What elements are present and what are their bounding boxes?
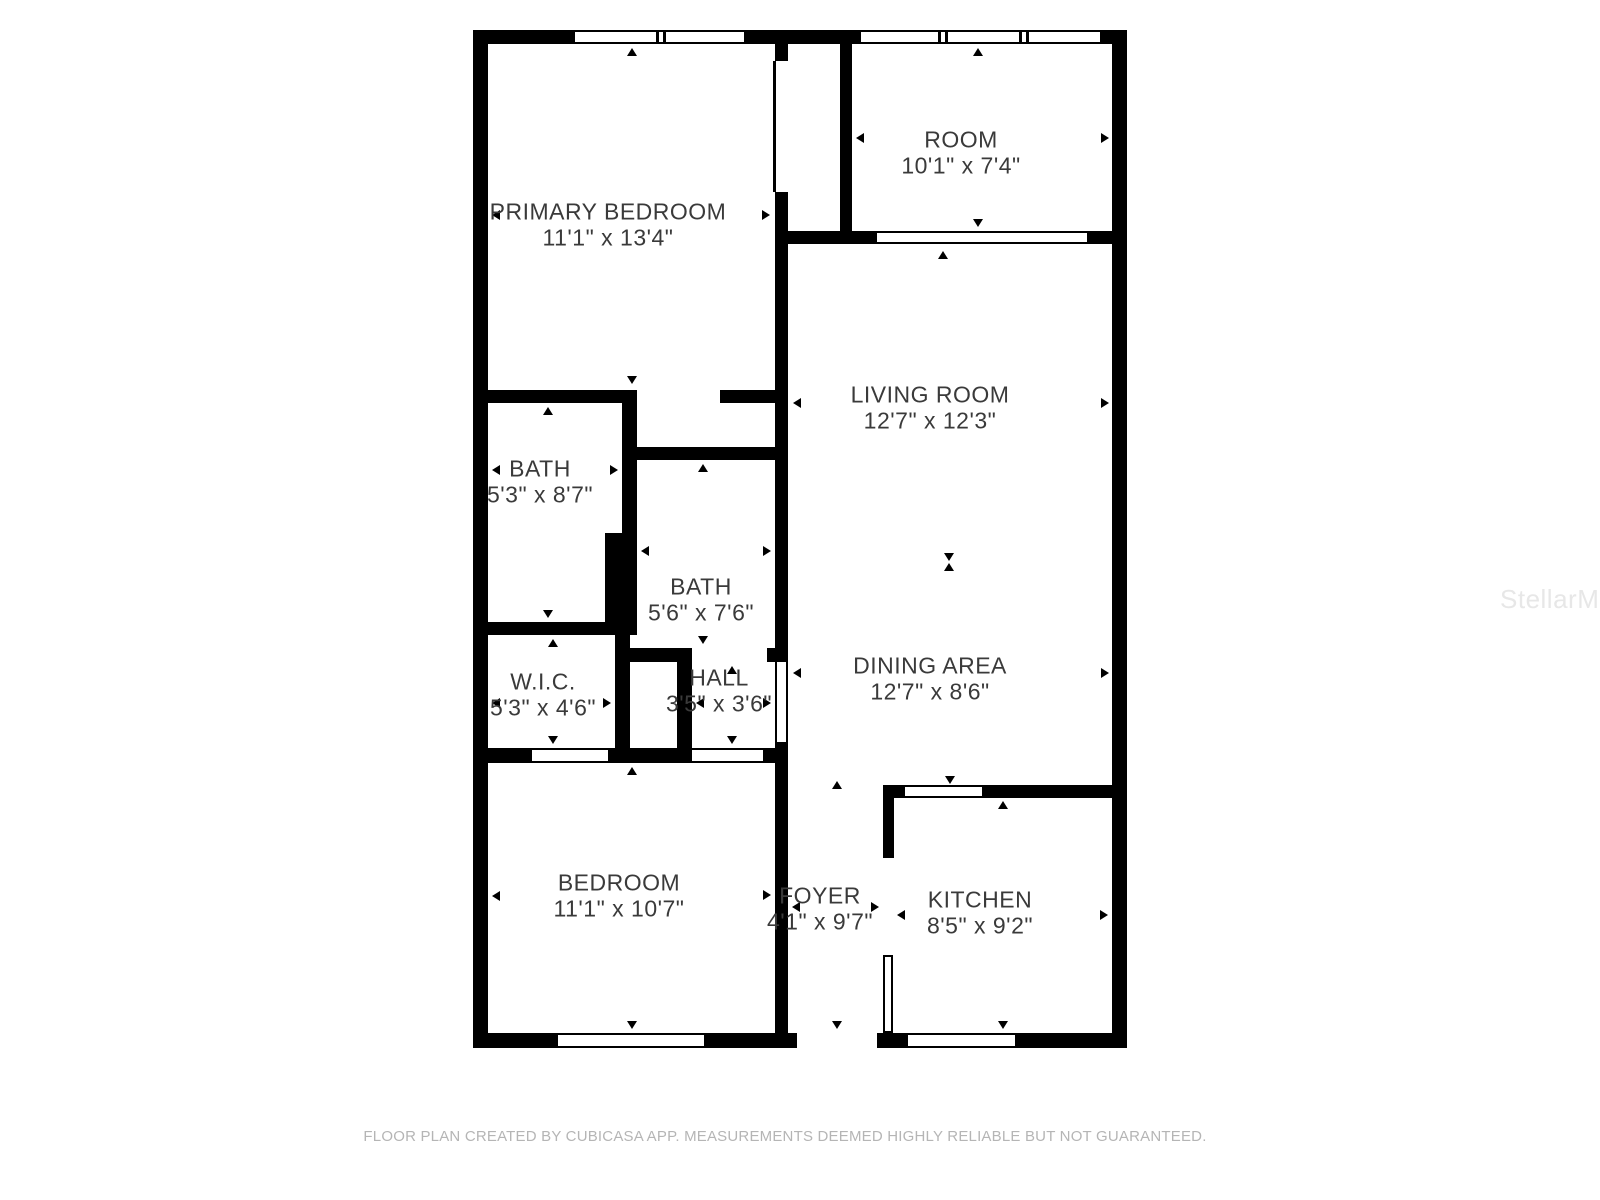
wall-opening <box>692 748 763 763</box>
window-mullion <box>938 32 941 42</box>
dimension-arrow-icon <box>627 48 637 56</box>
room-label-bath-2: BATH <box>670 574 732 601</box>
dimension-arrow-icon <box>793 398 801 408</box>
dimension-arrow-icon <box>548 639 558 647</box>
window <box>858 30 1103 44</box>
room-dims-bedroom: 11'1" x 10'7" <box>554 896 685 923</box>
wall <box>605 533 637 635</box>
window <box>902 785 985 798</box>
dimension-arrow-icon <box>610 465 618 475</box>
room-dims-primary-bedroom: 11'1" x 13'4" <box>543 225 674 252</box>
window-mullion <box>982 787 985 796</box>
room-dims-dining-area: 12'7" x 8'6" <box>870 679 989 706</box>
wall <box>767 648 788 662</box>
window-mullion <box>572 32 575 42</box>
window-mullion <box>1026 32 1029 42</box>
window-mullion <box>1019 32 1022 42</box>
dimension-arrow-icon <box>627 1021 637 1029</box>
room-label-kitchen: KITCHEN <box>928 887 1032 914</box>
dimension-arrow-icon <box>492 891 500 901</box>
dimension-arrow-icon <box>998 801 1008 809</box>
dimension-arrow-icon <box>998 1021 1008 1029</box>
dimension-arrow-icon <box>1101 398 1109 408</box>
wall <box>473 622 637 635</box>
wall <box>615 635 630 763</box>
room-dims-foyer: 4'1" x 9'7" <box>767 909 873 936</box>
dimension-arrow-icon <box>762 210 770 220</box>
room-dims-room: 10'1" x 7'4" <box>901 153 1020 180</box>
wall <box>630 648 692 662</box>
dimension-arrow-icon <box>973 48 983 56</box>
dimension-arrow-icon <box>832 781 842 789</box>
wall <box>622 390 637 533</box>
wall-opening <box>877 231 1087 244</box>
wall <box>1112 30 1127 1048</box>
room-label-hall: HALL <box>689 665 749 692</box>
door-gap <box>797 1033 877 1048</box>
watermark: StellarMLS <box>1500 584 1600 615</box>
dimension-arrow-icon <box>944 553 954 561</box>
wall-opening <box>532 748 608 763</box>
room-dims-living-room: 12'7" x 12'3" <box>864 408 997 435</box>
dimension-arrow-icon <box>698 636 708 644</box>
dimension-arrow-icon <box>1101 133 1109 143</box>
dimension-arrow-icon <box>1100 910 1108 920</box>
room-label-foyer: FOYER <box>779 883 861 910</box>
window-mullion <box>945 32 948 42</box>
wall <box>720 390 788 403</box>
dimension-arrow-icon <box>603 698 611 708</box>
wall <box>608 748 692 763</box>
room-dims-hall: 3'5" x 3'6" <box>666 691 772 718</box>
dimension-arrow-icon <box>492 465 500 475</box>
dimension-arrow-icon <box>641 546 649 556</box>
window-mullion <box>555 1035 558 1046</box>
wall <box>473 748 532 763</box>
footer-disclaimer: FLOOR PLAN CREATED BY CUBICASA APP. MEAS… <box>363 1128 1206 1145</box>
wall <box>775 44 788 61</box>
dimension-arrow-icon <box>856 133 864 143</box>
dimension-arrow-icon <box>627 767 637 775</box>
dimension-arrow-icon <box>763 890 771 900</box>
dimension-arrow-icon <box>543 407 553 415</box>
dimension-arrow-icon <box>698 464 708 472</box>
room-dims-wic: 5'3" x 4'6" <box>490 695 596 722</box>
dimension-arrow-icon <box>897 910 905 920</box>
room-label-room: ROOM <box>924 127 998 154</box>
wall-opening <box>775 662 788 742</box>
window <box>555 1033 707 1048</box>
window-mullion <box>1100 32 1103 42</box>
window-mullion <box>902 787 905 796</box>
room-label-bedroom: BEDROOM <box>558 870 680 897</box>
room-dims-kitchen: 8'5" x 9'2" <box>927 913 1033 940</box>
dimension-arrow-icon <box>1101 668 1109 678</box>
dimension-arrow-icon <box>793 668 801 678</box>
window-mullion <box>663 32 666 42</box>
wall <box>840 44 852 231</box>
window-mullion <box>744 32 747 42</box>
wall <box>775 192 788 662</box>
room-label-primary-bedroom: PRIMARY BEDROOM <box>490 199 727 226</box>
dimension-arrow-icon <box>548 736 558 744</box>
room-label-living-room: LIVING ROOM <box>851 382 1010 409</box>
wall <box>883 785 894 858</box>
dimension-arrow-icon <box>763 546 771 556</box>
window-mullion <box>858 32 861 42</box>
window-mullion <box>905 1035 908 1046</box>
room-dims-bath: 5'3" x 8'7" <box>487 482 593 509</box>
room-label-wic: W.I.C. <box>510 669 576 696</box>
wall <box>763 748 788 763</box>
wall <box>473 30 488 1048</box>
window <box>572 30 747 44</box>
dimension-arrow-icon <box>727 736 737 744</box>
floorplan-canvas: PRIMARY BEDROOM11'1" x 13'4"ROOM10'1" x … <box>0 0 1600 1200</box>
room-label-bath: BATH <box>509 456 571 483</box>
dimension-arrow-icon <box>973 219 983 227</box>
dimension-arrow-icon <box>832 1021 842 1029</box>
window-mullion <box>1015 1035 1018 1046</box>
dimension-arrow-icon <box>945 776 955 784</box>
wall <box>473 390 637 403</box>
room-dims-bath-2: 5'6" x 7'6" <box>648 600 754 627</box>
room-label-dining-area: DINING AREA <box>853 653 1007 680</box>
dimension-arrow-icon <box>938 251 948 259</box>
entry-door-leaf-icon <box>883 955 893 1033</box>
dimension-arrow-icon <box>627 376 637 384</box>
window-mullion <box>704 1035 707 1046</box>
dimension-arrow-icon <box>944 563 954 571</box>
window <box>905 1033 1018 1048</box>
wall <box>628 447 788 460</box>
door-leaf-icon <box>773 61 776 192</box>
dimension-arrow-icon <box>543 610 553 618</box>
window-mullion <box>656 32 659 42</box>
